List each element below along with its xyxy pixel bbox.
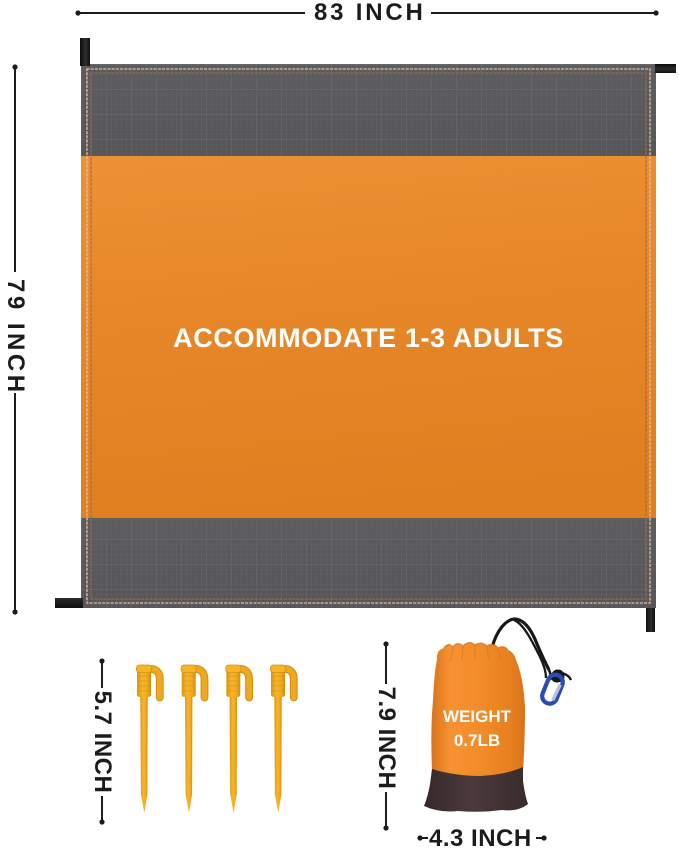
svg-text:WEIGHT: WEIGHT <box>443 707 512 726</box>
svg-text:0.7LB: 0.7LB <box>454 731 500 750</box>
